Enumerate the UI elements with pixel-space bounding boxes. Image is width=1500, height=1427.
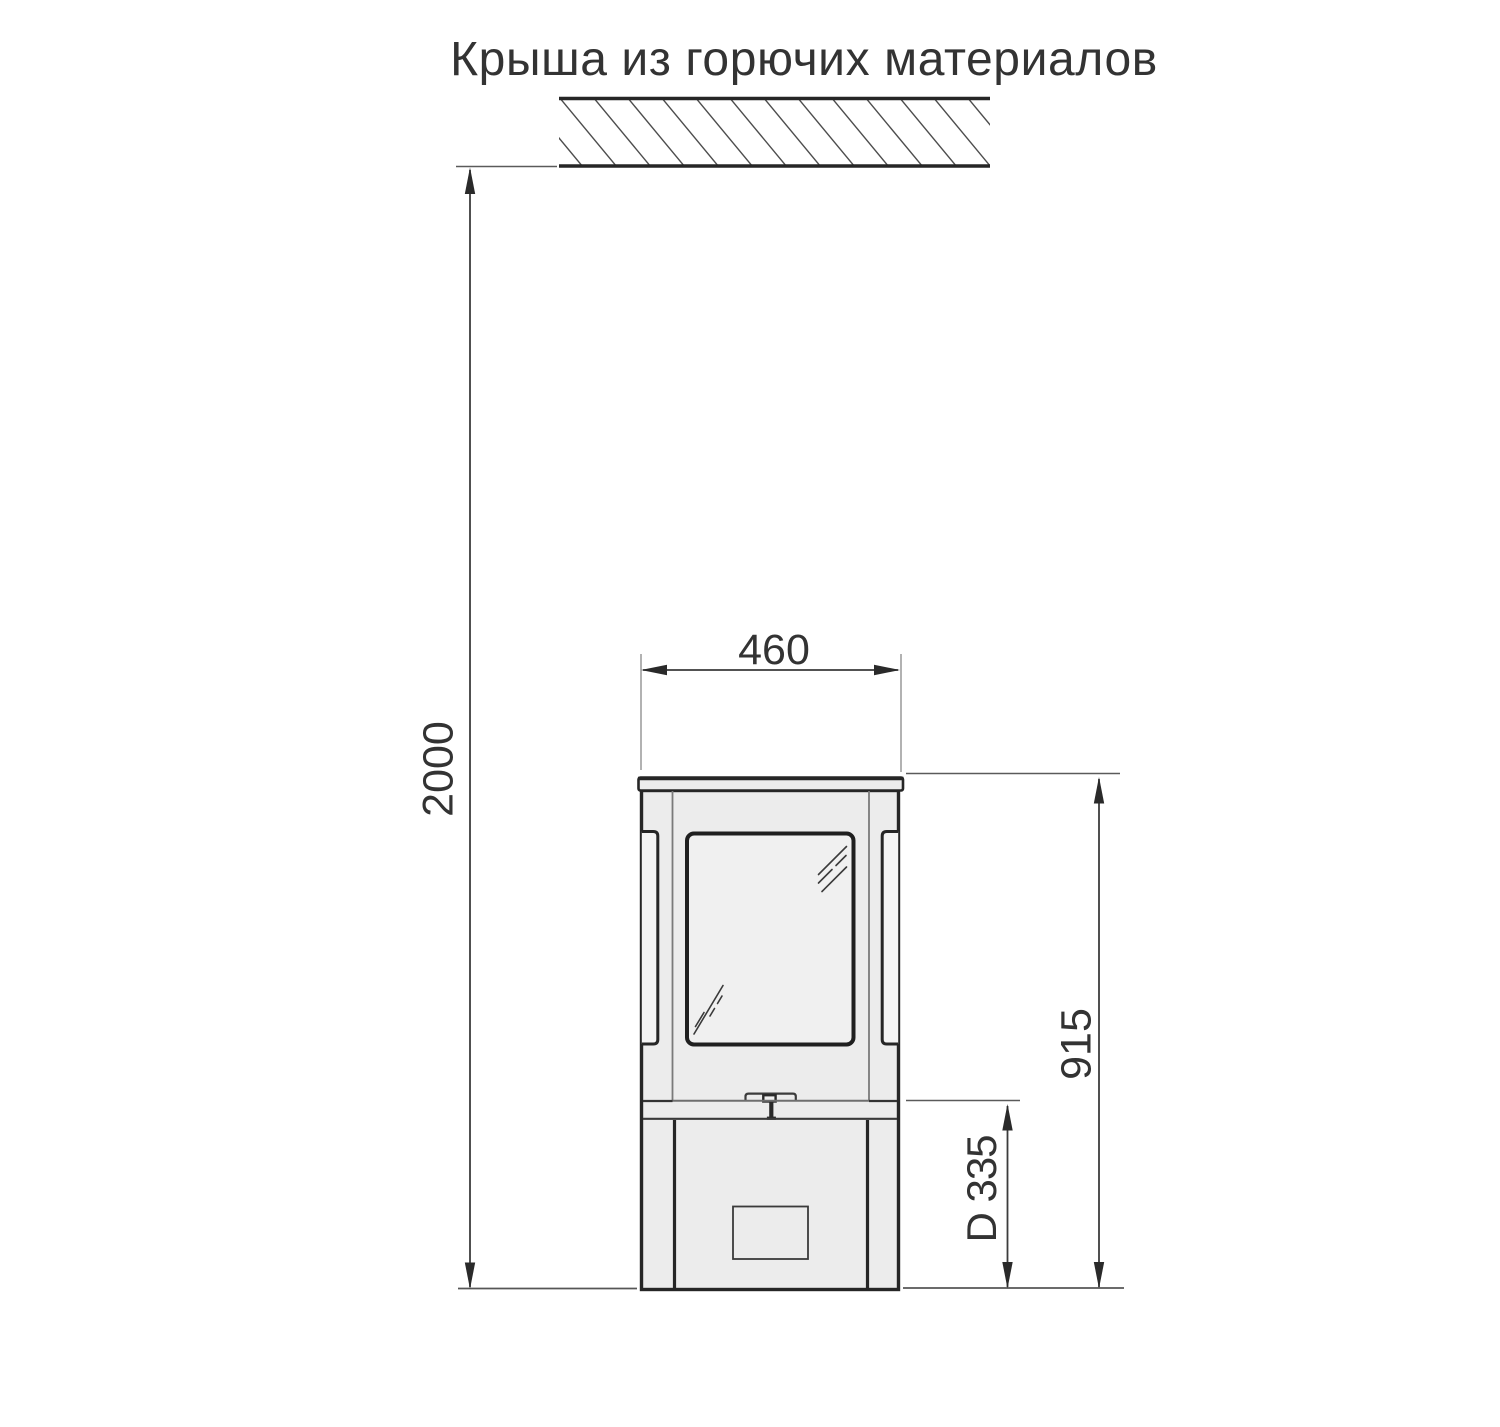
svg-text:915: 915 xyxy=(1053,1008,1101,1080)
svg-text:2000: 2000 xyxy=(415,721,463,817)
svg-text:D 335: D 335 xyxy=(958,1135,1005,1242)
svg-text:Крыша из горючих материалов: Крыша из горючих материалов xyxy=(450,33,1158,86)
svg-text:460: 460 xyxy=(738,626,810,674)
